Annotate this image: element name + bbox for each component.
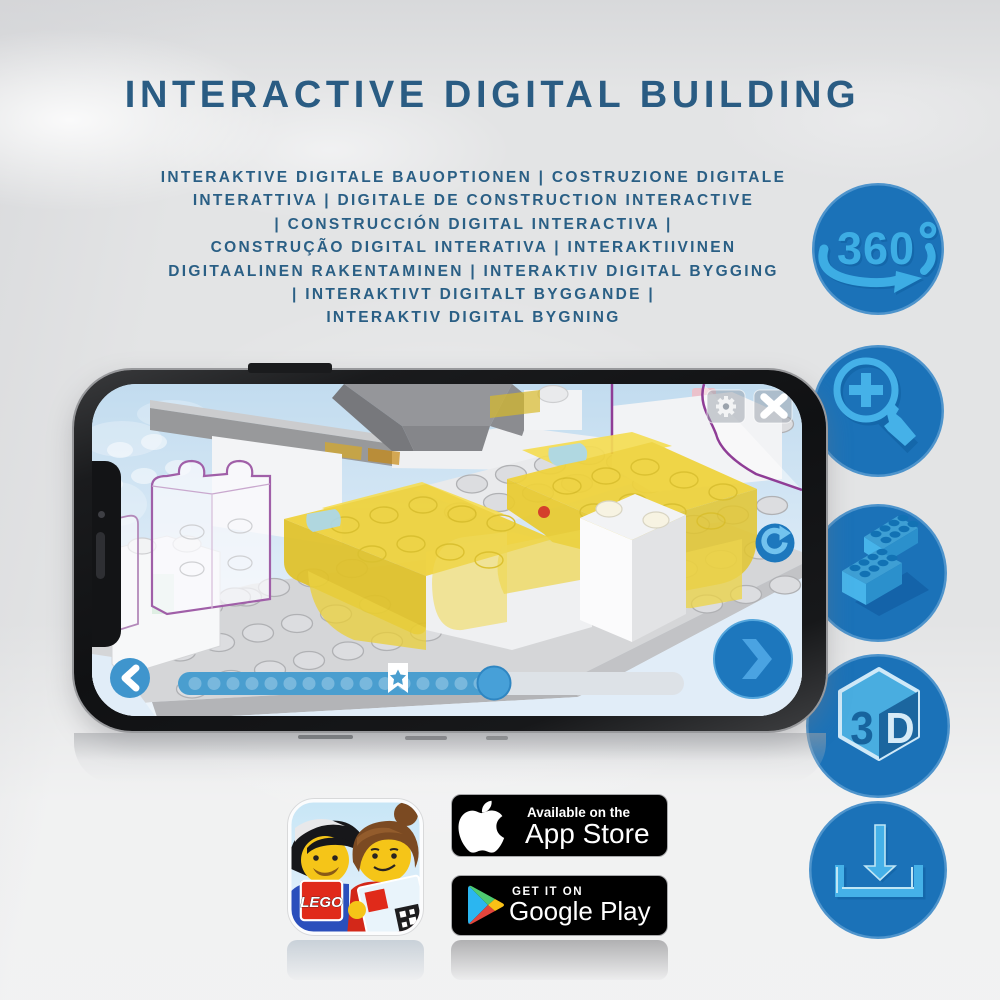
svg-text:360: 360 — [837, 223, 915, 274]
svg-text:3: 3 — [850, 703, 874, 754]
svg-text:D: D — [885, 703, 914, 752]
svg-text:Google Play: Google Play — [509, 896, 651, 926]
svg-text:App Store: App Store — [525, 818, 650, 849]
svg-text:LEGO: LEGO — [300, 894, 343, 911]
